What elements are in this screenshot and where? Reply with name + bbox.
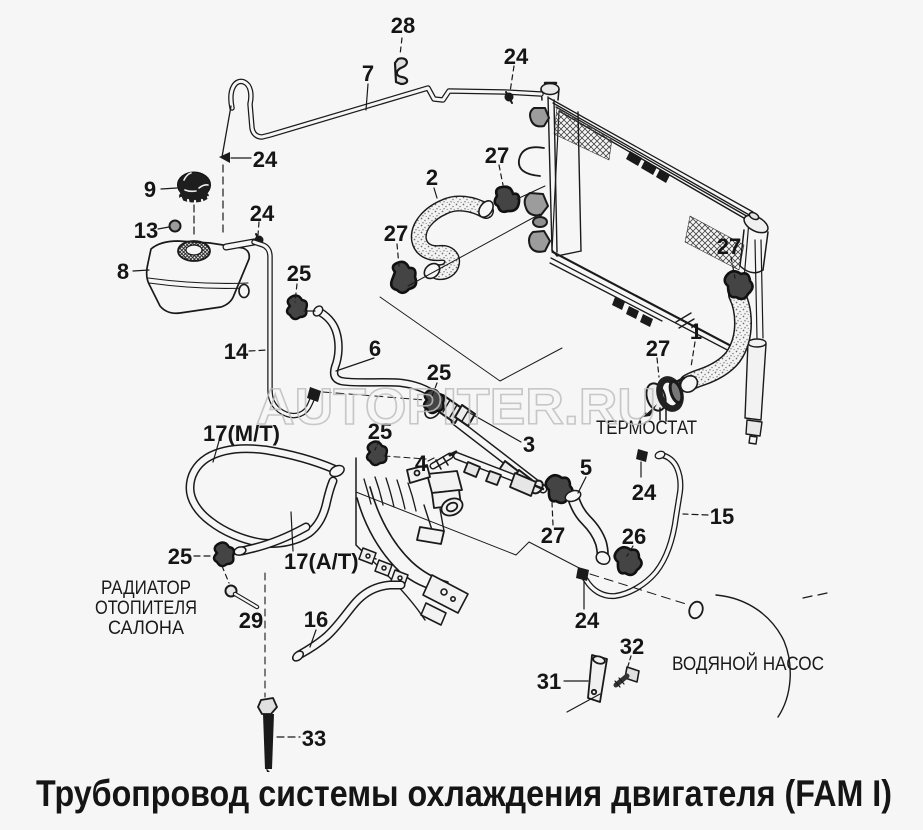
svg-text:2: 2 xyxy=(426,165,438,190)
svg-text:5: 5 xyxy=(580,455,592,480)
svg-text:27: 27 xyxy=(541,523,565,548)
svg-text:32: 32 xyxy=(620,634,644,659)
svg-text:AUTOPITER.RU: AUTOPITER.RU xyxy=(256,378,656,435)
svg-text:ВОДЯНОЙ НАСОС: ВОДЯНОЙ НАСОС xyxy=(672,653,824,675)
svg-text:7: 7 xyxy=(362,61,374,86)
svg-text:27: 27 xyxy=(485,143,509,168)
svg-text:27: 27 xyxy=(384,221,408,246)
svg-text:14: 14 xyxy=(224,339,249,364)
svg-text:27: 27 xyxy=(646,336,670,361)
svg-text:28: 28 xyxy=(391,13,415,38)
svg-text:17(А/Т): 17(А/Т) xyxy=(284,549,359,574)
svg-text:33: 33 xyxy=(302,726,326,751)
svg-text:24: 24 xyxy=(575,608,600,633)
svg-text:Трубопровод системы охлаждения: Трубопровод системы охлаждения двигателя… xyxy=(36,773,892,814)
svg-text:25: 25 xyxy=(168,544,192,569)
svg-text:8: 8 xyxy=(117,259,129,284)
svg-text:13: 13 xyxy=(134,218,158,243)
svg-text:ОТОПИТЕЛЯ: ОТОПИТЕЛЯ xyxy=(95,598,197,619)
svg-text:1: 1 xyxy=(690,319,702,344)
svg-text:24: 24 xyxy=(504,44,529,69)
svg-text:29: 29 xyxy=(239,608,263,633)
svg-text:16: 16 xyxy=(304,607,328,632)
svg-text:24: 24 xyxy=(253,147,278,172)
svg-text:27: 27 xyxy=(717,234,741,259)
svg-text:6: 6 xyxy=(369,336,381,361)
svg-text:9: 9 xyxy=(144,177,156,202)
svg-text:26: 26 xyxy=(622,524,646,549)
svg-text:24: 24 xyxy=(632,480,657,505)
svg-text:3: 3 xyxy=(523,432,535,457)
svg-text:24: 24 xyxy=(250,201,275,226)
svg-text:31: 31 xyxy=(537,669,561,694)
svg-text:25: 25 xyxy=(287,261,311,286)
svg-text:РАДИАТОР: РАДИАТОР xyxy=(101,578,191,599)
svg-text:4: 4 xyxy=(415,451,428,476)
svg-text:САЛОНА: САЛОНА xyxy=(108,618,184,639)
svg-text:15: 15 xyxy=(710,504,734,529)
